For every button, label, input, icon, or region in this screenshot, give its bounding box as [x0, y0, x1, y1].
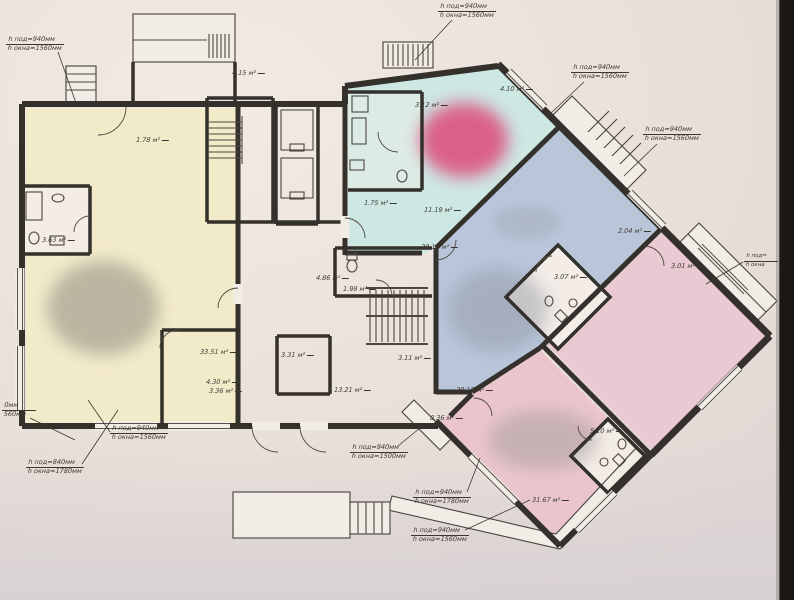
area-label-pink-room: 31.67 м²	[532, 496, 569, 504]
tambour-top	[133, 14, 235, 62]
entry-steps-topleft	[66, 66, 96, 102]
bathroom-teal	[348, 92, 422, 190]
area-label-hall-a: 11.19 м²	[424, 206, 461, 214]
callout-window-height: h окна=1560мм	[5, 45, 64, 53]
blob-slate-blue-room	[447, 268, 547, 352]
area-label-blue-door: 2.04 м²	[618, 227, 651, 235]
porch	[233, 492, 350, 538]
area-label-yellow-bath: 3.63 м²	[42, 236, 75, 244]
area-label-corridor: 13.21 м²	[334, 386, 371, 394]
area-label-pink2-hall: 3.01 м²	[671, 262, 704, 270]
callout-window-height: 560мм	[1, 411, 36, 419]
callout-sill-height: h под=	[744, 253, 779, 262]
window-spec-callout-right-partial: h под= h окна	[743, 253, 778, 270]
area-label-teal-top: 4.10 м²	[500, 85, 533, 93]
floor-plan-drawing	[0, 0, 794, 600]
area-label-wing-bath: 3.07 м²	[554, 273, 587, 281]
area-label-yellow-room: 33.51 м²	[200, 348, 237, 356]
window-spec-callout-bottom-1: h под=940мм h окна=1780мм	[412, 489, 471, 506]
window-spec-callout-bottom-center: h под=940мм h окна=1500мм	[349, 444, 408, 461]
area-label-yellow-top: 1.78 м²	[136, 136, 169, 144]
callout-window-height: h окна=1500мм	[349, 453, 408, 461]
window-spec-callout-bottom-left-upper: h под=940мм h окна=1560мм	[109, 425, 168, 442]
area-label-entry-top: 4.15 м²	[232, 69, 265, 77]
area-label-wing-left: 8.36 м²	[430, 414, 463, 422]
callout-window-height: h окна=1560мм	[642, 135, 701, 143]
callout-window-height: h окна=1560мм	[437, 12, 496, 20]
porch-steps	[350, 502, 390, 534]
blob-gray-yellow-room	[47, 261, 159, 355]
callout-window-height: h окна=1780мм	[25, 468, 84, 476]
area-label-hall-b: 20.14 м²	[421, 243, 458, 251]
window-spec-callout-bottom-left: h под=840мм h окна=1780мм	[25, 459, 84, 476]
window-spec-callout-top-right: h под=940мм h окна=1560мм	[570, 64, 629, 81]
area-label-core-store: 3.31 м²	[281, 351, 314, 359]
area-label-teal-bath-a: 3.12 м²	[415, 101, 448, 109]
area-label-blue-bottom: 20.16 м²	[456, 386, 493, 394]
callout-window-height: h окна=1780мм	[412, 498, 471, 506]
floor-plan-photo: h под=940мм h окна=1560мм h под=940мм h …	[0, 0, 794, 600]
callout-window-height: h окна=1560мм	[109, 434, 168, 442]
callout-window-height: h окна	[743, 262, 778, 270]
room-yellow-apartment	[26, 108, 236, 424]
area-label-pink-bath: 5.10 м²	[590, 427, 623, 435]
window-spec-callout-top-left: h под=940мм h окна=1560мм	[5, 36, 64, 53]
area-label-yellow-small-b: 3.36 м²	[209, 387, 242, 395]
window-spec-callout-right: h под=940мм h окна=1560мм	[642, 126, 701, 143]
area-label-yellow-small-a: 4.30 м²	[206, 378, 239, 386]
blob-slate-blue-room-2	[493, 205, 561, 239]
window-spec-callout-top-center: h под=940мм h окна=1560мм	[437, 3, 496, 20]
window-spec-callout-bottom-2: h под=940мм h окна=1560мм	[410, 527, 469, 544]
window-spec-callout-left-partial: 0мм 560мм	[1, 402, 36, 419]
blob-red-teal-room	[420, 103, 508, 177]
callout-window-height: h окна=1560мм	[570, 73, 629, 81]
photo-edge-strip	[779, 0, 794, 600]
area-label-teal-bath-b: 1.75 м²	[364, 199, 397, 207]
area-label-core-right: 3.11 м²	[398, 354, 431, 362]
callout-window-height: h окна=1560мм	[410, 536, 469, 544]
blob-gray-pink-room	[488, 410, 598, 470]
area-label-wc-a: 4.86 м²	[316, 274, 349, 282]
area-label-wc-b: 1.98 м²	[343, 285, 376, 293]
